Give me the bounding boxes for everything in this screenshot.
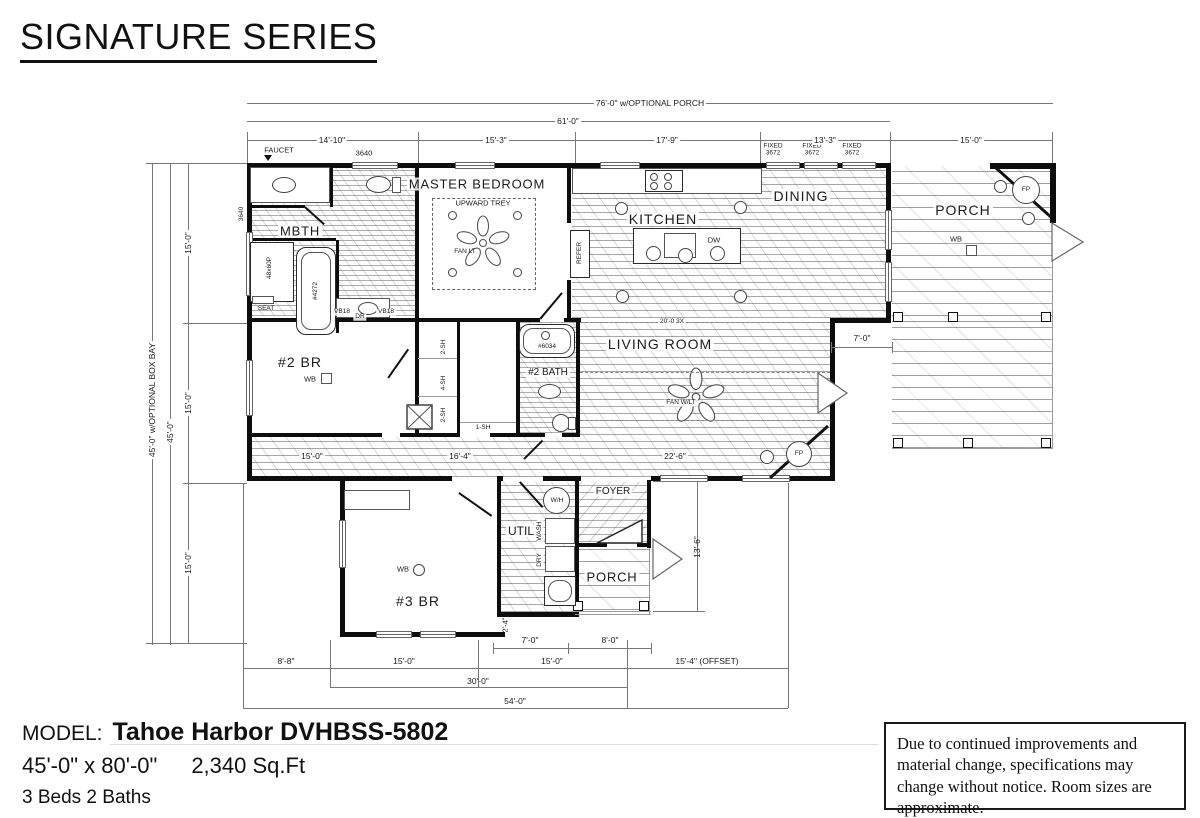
fireplace-label: FP (793, 451, 805, 458)
dim-offset: 7'-0" (852, 334, 873, 343)
window-marker (352, 162, 398, 169)
wb-box (321, 373, 332, 384)
dim-left-main: 45'-0" (166, 419, 175, 445)
dimension-tick (653, 611, 705, 612)
faucet-arrow (264, 155, 272, 161)
dim-hall-b: 16'-4" (447, 452, 473, 461)
trey-label: UPWARD TREY (453, 199, 512, 207)
entry-arrow-icon (1051, 222, 1085, 262)
wall-segment (567, 163, 571, 223)
window-marker (455, 162, 495, 169)
dim-living-w: 22'-6" (662, 452, 688, 461)
wall-segment (336, 240, 339, 333)
dim-top-seg: 14'-10" (317, 136, 347, 145)
dryer-label: DRY (537, 551, 544, 569)
wb-label: WB (395, 565, 411, 573)
dimension-tick (892, 342, 893, 353)
dimension-tick (418, 132, 419, 163)
dim-porch-w: 8'-0" (600, 636, 621, 645)
toilet-tank (568, 417, 576, 430)
model-size: 45'-0" x 80'-0" (22, 753, 157, 778)
wall-segment (330, 163, 333, 207)
model-sqft: 2,340 Sq.Ft (191, 753, 305, 778)
page-title: SIGNATURE SERIES (20, 16, 377, 63)
porch-column (1041, 312, 1051, 322)
wall-segment (516, 433, 545, 437)
dim-left-overall: 45'-0" w/OPTIONAL BOX BAY (148, 341, 157, 459)
wall-segment (830, 318, 891, 323)
can-light-icon (513, 211, 522, 220)
disclaimer-box: Due to continued improvements and materi… (884, 722, 1186, 810)
room-label-porch: PORCH (933, 203, 993, 217)
room-label-kitchen: KITCHEN (627, 212, 699, 226)
wall-segment (497, 612, 579, 617)
porch2-edge (649, 548, 650, 614)
dim-top-seg: 15'-3" (483, 136, 509, 145)
window-marker (842, 162, 876, 169)
dim-hall-a: 15'-0" (299, 452, 325, 461)
dimension-tick (760, 132, 761, 163)
wall-segment (247, 318, 540, 322)
dimension-tick (890, 132, 891, 163)
dimension-tick (146, 643, 247, 644)
room-label-util: UTIL (506, 525, 536, 537)
room-label-foyer: FOYER (594, 487, 632, 497)
window-size-label: 3640 (239, 205, 246, 223)
dim-top-seg: 17'-9" (654, 136, 680, 145)
shelf-line (418, 358, 457, 359)
wall-segment (457, 322, 460, 433)
tub-drain (541, 331, 550, 340)
pendant-light-icon (710, 246, 725, 261)
dimension-tick (493, 643, 494, 654)
water-heater-label: W/H (549, 498, 566, 505)
wall-segment (400, 433, 460, 437)
dim-top-overall: 76'-0" w/OPTIONAL PORCH (594, 99, 706, 108)
porch-rail (892, 321, 1053, 322)
dimension-line (243, 708, 788, 709)
dimension-tick (568, 643, 569, 654)
dim-porch-side: 13'-6" (693, 534, 702, 560)
entry-arrow-icon (817, 372, 849, 414)
window-marker (885, 210, 892, 250)
shelf-label: 4-SH (441, 374, 448, 393)
fixed-window-size: 3672 (845, 149, 859, 156)
wb-label: WB (302, 375, 318, 383)
seat-label: SEAT (256, 306, 277, 313)
dimension-tick (575, 132, 576, 163)
tub-label: #6034 (536, 344, 558, 351)
dimension-tick (831, 342, 832, 353)
dishwasher-label: DW (706, 236, 723, 244)
porch-column (893, 312, 903, 322)
dim-top-seg: 15'-0" (958, 136, 984, 145)
room-label-mbth: MBTH (278, 225, 322, 238)
dim-top-main: 61'-0" (555, 117, 581, 126)
can-light-icon (513, 268, 522, 277)
dryer-icon (545, 546, 575, 572)
faucet-label: FAUCET (262, 146, 296, 154)
door-leaf (539, 292, 562, 319)
size-row: 45'-0" x 80'-0"2,340 Sq.Ft (22, 753, 305, 779)
extension-line (788, 483, 789, 708)
shelf-line (418, 396, 457, 397)
wall-segment (490, 433, 516, 437)
porch-edge (892, 448, 1053, 449)
fixed-window-size: 3672 (805, 149, 819, 156)
dim-left-seg: 15'-0" (184, 390, 193, 416)
dimension-line (247, 140, 1053, 141)
dimension-line (568, 648, 651, 649)
cabinet-label: VB18 (376, 309, 396, 316)
room-label-porch2: PORCH (585, 571, 640, 584)
porch2-edge (575, 614, 651, 615)
wb-box (413, 564, 425, 576)
burner-icon (664, 182, 672, 190)
shelf-label: 2-SH (441, 338, 448, 357)
beam-line (580, 322, 830, 323)
extension-line (243, 483, 244, 708)
window-size-label: 3640 (354, 149, 375, 157)
floor-plan-sheet: SIGNATURE SERIES (0, 0, 1200, 818)
cabinet-label: VB18 (332, 309, 352, 316)
dimension-tick (146, 163, 247, 164)
ceiling-fan-icon (455, 215, 511, 271)
porch-column (639, 601, 649, 611)
window-marker (885, 262, 892, 302)
wall-segment (497, 480, 501, 617)
can-light-icon (734, 201, 747, 214)
refrigerator-label: REFER (577, 240, 584, 266)
sink-icon (272, 177, 296, 193)
fixed-window-label: FIXED 3672 (800, 144, 823, 157)
fan-label: FAN LT (452, 249, 478, 256)
dim-jog: 2'-4" (501, 616, 509, 635)
wall-segment (247, 205, 305, 208)
beam-line (580, 420, 830, 421)
dim-util-w: 7'-0" (520, 636, 541, 645)
wb-label: WB (948, 235, 964, 243)
dim-bottom-seg: 15'-0" (391, 657, 417, 666)
burner-icon (664, 173, 672, 181)
window-marker (246, 360, 253, 416)
room-label-bath2: #2 BATH (526, 368, 570, 378)
shelf-label: 2-SH (441, 406, 448, 425)
dim-bottom-seg: 8'-8" (276, 657, 297, 666)
dimension-tick (183, 323, 247, 324)
marker-box-icon (406, 404, 433, 430)
washer-icon (545, 518, 575, 544)
wall-segment (647, 480, 651, 548)
wall-segment (247, 476, 452, 481)
fixed-window-size: 3672 (766, 149, 780, 156)
window-marker (339, 520, 346, 568)
toilet-tank (392, 177, 401, 193)
porch-column (1041, 438, 1051, 448)
fireplace-detail (760, 450, 774, 464)
dim-left-seg: 15'-0" (184, 230, 193, 256)
extension-line (330, 640, 331, 687)
door-leaf (459, 492, 493, 516)
ceiling-fan-icon (666, 367, 726, 427)
model-name: Tahoe Harbor DVHBSS-5802 (113, 718, 449, 746)
dimension-tick (247, 132, 248, 163)
dim-bottom-seg: 15'-4" (OFFSET) (673, 657, 740, 666)
dimension-line (493, 648, 568, 649)
model-row: MODEL:Tahoe Harbor DVHBSS-5802 (22, 718, 448, 747)
dim-left-seg: 15'-0" (184, 550, 193, 576)
dimension-tick (653, 481, 705, 482)
shower-seat (252, 296, 274, 304)
porch-column (893, 438, 903, 448)
porch-column (963, 438, 973, 448)
closet (344, 490, 410, 510)
dimension-tick (1052, 132, 1053, 163)
extension-line (478, 640, 479, 687)
fireplace-label: FP (1020, 187, 1032, 194)
dimension-line (831, 347, 893, 348)
room-label-br3: #3 BR (394, 594, 442, 608)
fan-label: FAN W/LT (664, 400, 698, 407)
dimension-line (170, 163, 171, 645)
room-label-master: MASTER BEDROOM (407, 178, 547, 191)
window-marker (420, 631, 456, 638)
burner-icon (650, 173, 658, 181)
fixed-window-label: FIXED 3672 (761, 144, 784, 157)
can-light-icon (734, 290, 747, 303)
entry-arrow-icon (652, 538, 684, 580)
toilet-icon (366, 176, 391, 193)
porch-column (948, 312, 958, 322)
room-label-br2: #2 BR (276, 355, 324, 369)
porch2-edge (575, 611, 651, 612)
window-marker (376, 631, 412, 638)
tub-label: #4272 (313, 280, 320, 302)
wb-box (966, 245, 977, 256)
front-door-swing (596, 519, 644, 545)
dim-top-seg: 13'-3" (812, 136, 838, 145)
sink-icon (538, 384, 561, 399)
wall-segment (562, 433, 576, 437)
window-marker (804, 162, 838, 169)
extension-line (627, 640, 628, 708)
room-label-living: LIVING ROOM (606, 337, 714, 351)
pendant-light-icon (646, 246, 661, 261)
pendant-light-icon (678, 248, 693, 263)
beam-line (580, 372, 830, 373)
dimension-tick (183, 483, 247, 484)
dimension-tick (651, 643, 652, 654)
window-marker (766, 162, 800, 169)
model-label: MODEL: (22, 722, 103, 745)
dim-bottom-total: 54'-0" (502, 697, 528, 706)
wall-segment (567, 280, 571, 322)
cabinet-label: DR (353, 314, 366, 321)
can-light-icon (616, 290, 629, 303)
burner-icon (650, 182, 658, 190)
dim-bottom-seg: 15'-0" (539, 657, 565, 666)
laundry-tub-basin (548, 580, 572, 602)
door-leaf (387, 349, 408, 379)
fireplace-detail (994, 180, 1007, 193)
shelf-label: 1-SH (474, 425, 493, 432)
room-label-dining: DINING (772, 189, 831, 203)
fixed-window-label: FIXED 3672 (840, 144, 863, 157)
shower-label: 48x60P (267, 255, 274, 281)
wall-segment (247, 433, 382, 437)
washer-label: WASH (537, 519, 544, 542)
fireplace-detail (1022, 212, 1035, 225)
dimension-line (243, 668, 788, 669)
porch-rail (892, 315, 1053, 316)
beds-baths: 3 Beds 2 Baths (22, 787, 151, 809)
dimension-line (330, 687, 627, 688)
beam-label: 20'-0 3X (658, 319, 686, 326)
